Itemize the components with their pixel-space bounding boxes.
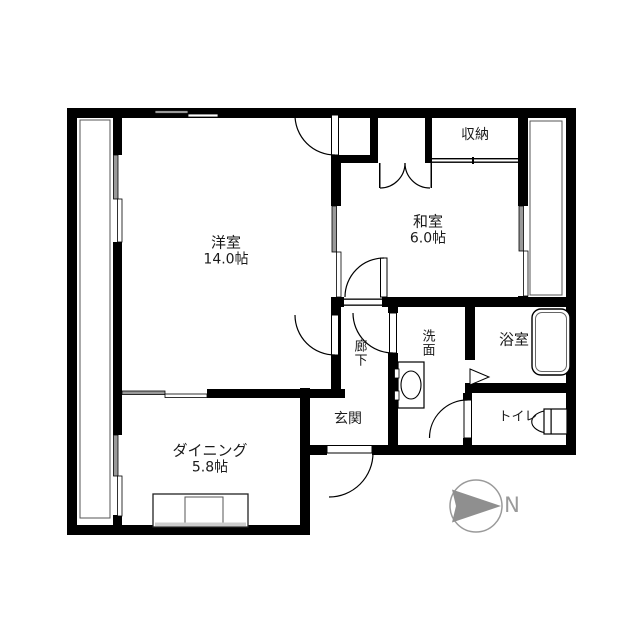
wall-japanese-bottom-right [382,297,576,307]
wall-bottom-entrance-right [372,445,576,455]
door-leaf-corridor-washroom [390,313,397,353]
room-label-western-block: 洋室 14.0帖 [203,234,248,267]
washbasin-bowl [401,371,421,399]
door-arc-japanese [345,258,384,297]
closet2-door-frame-left [379,163,381,188]
storage-door-tick [472,157,474,164]
floorplan: 洋室 14.0帖 和室 6.0帖 収納 廊下 洗面 浴室 トイレ 玄関 ダイニン… [0,0,640,640]
bathtub-inner [536,313,567,372]
balconies [80,120,562,518]
door-leaf-japanese [381,258,388,297]
room-label-japanese: 和室 [410,213,446,230]
wall-washroom-bathroom [465,297,475,360]
toilet-tank-divider [551,409,552,434]
wall-west-room-left-top [113,110,122,155]
door-leaf-front [327,446,372,454]
wall-right [566,108,576,455]
room-size-japanese: 6.0帖 [410,231,446,247]
room-size-dining: 5.8帖 [172,460,247,476]
wall-closet2-storage [425,110,432,163]
window-top-panel1 [155,111,188,114]
room-label-dining: ダイニング [172,442,247,459]
window-japanese-right-panel1 [519,206,524,251]
room-label-entrance: 玄関 [334,411,362,427]
window-west-left-panel1 [114,155,119,199]
wall-corridor-washroom-top [388,307,398,313]
wall-west-room-left-mid [113,242,122,435]
sliding-door-west-japanese-panel2 [337,252,342,297]
room-label-western: 洋室 [203,234,248,251]
room-label-bathroom-block: 浴室 [499,331,529,348]
sliding-door-west-dining-panel2 [165,394,207,398]
japanese-door-threshold [344,299,382,306]
door-arc-west-closet [295,115,335,155]
door-leaf-west-corridor [332,315,339,355]
wall-left [67,108,77,535]
door-arc-front [329,453,373,497]
room-label-washroom: 洗面 [422,331,437,360]
washbasin-tap-top [395,369,400,378]
door-arc-toilet [430,400,468,438]
room-size-western: 14.0帖 [203,252,248,268]
wall-dining-top [207,389,345,398]
room-label-dining-block: ダイニング 5.8帖 [172,442,247,475]
wall-japanese-right-top [518,108,528,206]
window-japanese-right-panel2 [524,251,529,296]
storage-door-line2 [432,162,518,163]
exterior-walls [67,108,576,535]
window-dining-left-panel2 [118,476,123,516]
washbasin-tap-bottom [395,391,400,400]
door-leaf-west-closet [332,115,339,155]
storage-sliding-door [432,157,518,164]
wall-top [67,108,576,118]
floorplan-drawing [0,0,640,640]
sliding-door-west-dining-panel1 [122,391,165,395]
threshold-line1 [344,299,382,300]
balcony-left [80,120,110,518]
closet2-door-frame-right [431,163,433,188]
compass-north-arrow-icon [452,490,501,523]
wall-dining-left-bottom [113,515,122,529]
room-label-toilet-block: トイレ [498,411,537,426]
door-arc-closet2-right [405,163,430,188]
bathroom-folding-door-icon [470,369,489,385]
window-west-left-panel2 [118,199,123,242]
window-top-panel2 [188,114,218,117]
room-label-toilet: トイレ [498,411,537,426]
wall-dining-right [300,388,310,535]
room-label-entrance-block: 玄関 [334,411,362,427]
toilet-tank [544,409,567,434]
bathtub-icon [532,309,570,375]
wall-closet1-closet2 [370,110,378,163]
wall-closet-left-stub [331,108,341,115]
compass [450,480,502,532]
window-dining-left-panel1 [114,435,119,476]
room-label-japanese-block: 和室 6.0帖 [410,213,446,246]
wall-toilet-left-stub [463,393,472,400]
washbasin-icon [395,362,425,408]
storage-door-line1 [432,158,518,159]
sliding-door-west-japanese-panel1 [332,206,337,252]
balcony-right [530,121,562,295]
wall-bathroom-toilet [465,383,576,393]
room-label-corridor: 廊下 [354,341,369,370]
door-arc-west-corridor [295,315,335,355]
room-label-storage-block: 収納 [461,127,489,143]
compass-north-label: N [504,493,520,517]
kitchen-counter-edge [155,523,246,527]
wall-japanese-bottom-left [331,297,344,307]
room-label-bathroom: 浴室 [499,331,529,348]
door-leaf-toilet [464,400,472,438]
kitchen-sink [185,497,223,523]
threshold-line2 [344,305,382,306]
room-label-storage: 収納 [461,127,489,143]
kitchen-counter-icon [153,494,248,527]
wall-toilet-left-bottom [463,438,472,455]
door-arc-closet2-left [380,163,405,188]
